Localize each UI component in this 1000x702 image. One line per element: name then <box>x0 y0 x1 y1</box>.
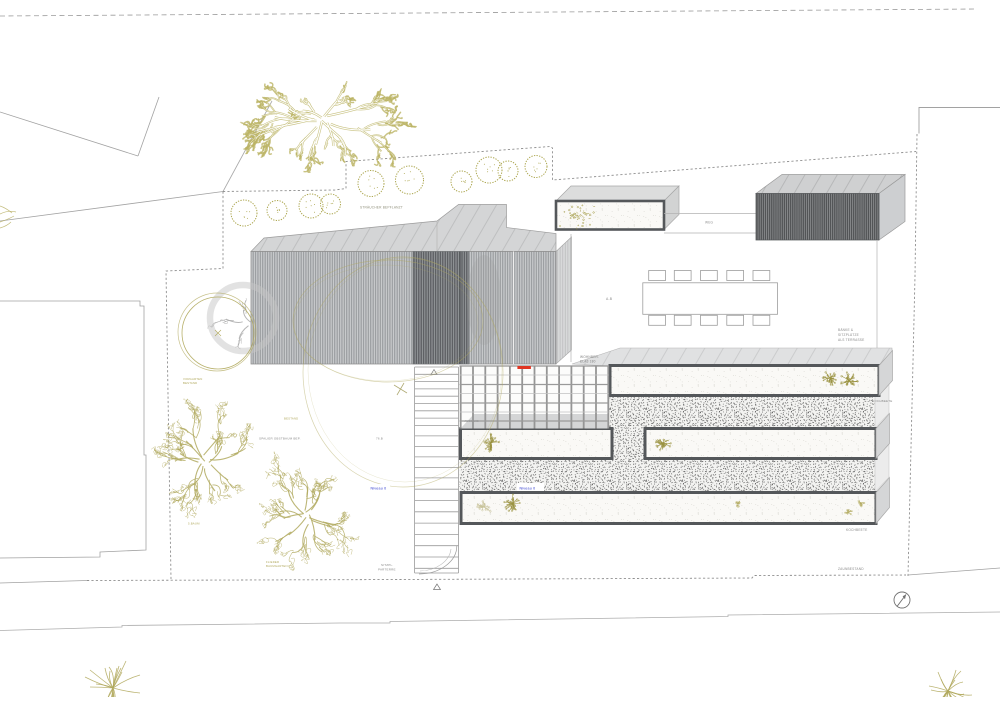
svg-text:5.BAUM: 5.BAUM <box>188 522 200 526</box>
svg-text:BESTAND: BESTAND <box>284 417 298 421</box>
svg-text:WEG: WEG <box>705 221 714 225</box>
svg-text:BAUMGARTEN: BAUMGARTEN <box>266 564 288 568</box>
svg-text:Niveau 0: Niveau 0 <box>520 487 536 491</box>
svg-text:76.B: 76.B <box>376 437 383 441</box>
svg-text:SITZPLÄTZE: SITZPLÄTZE <box>838 333 859 337</box>
svg-text:ELA3 180: ELA3 180 <box>580 360 596 364</box>
svg-text:BÄNKE &: BÄNKE & <box>838 328 854 332</box>
svg-text:BESTAND: BESTAND <box>183 381 197 385</box>
svg-text:Niveau 0: Niveau 0 <box>371 487 387 491</box>
svg-text:STRÄUCHER BEPFLANZT: STRÄUCHER BEPFLANZT <box>360 206 403 210</box>
svg-text:SITZPL.: SITZPL. <box>381 563 393 567</box>
svg-text:A-B: A-B <box>606 297 613 301</box>
svg-text:KOCHBEETE: KOCHBEETE <box>846 528 867 532</box>
svg-text:ZAUNBESTAND: ZAUNBESTAND <box>838 567 864 571</box>
svg-text:SPALIER OBSTBAUM BEP.: SPALIER OBSTBAUM BEP. <box>259 437 301 441</box>
svg-text:HOCHBEETE: HOCHBEETE <box>872 399 892 403</box>
svg-text:AUSGANG: AUSGANG <box>465 419 479 423</box>
svg-text:PARTERRE: PARTERRE <box>378 568 396 572</box>
svg-text:ALS TERRASSE: ALS TERRASSE <box>838 338 864 342</box>
svg-text:WOHNBER.: WOHNBER. <box>580 355 599 359</box>
